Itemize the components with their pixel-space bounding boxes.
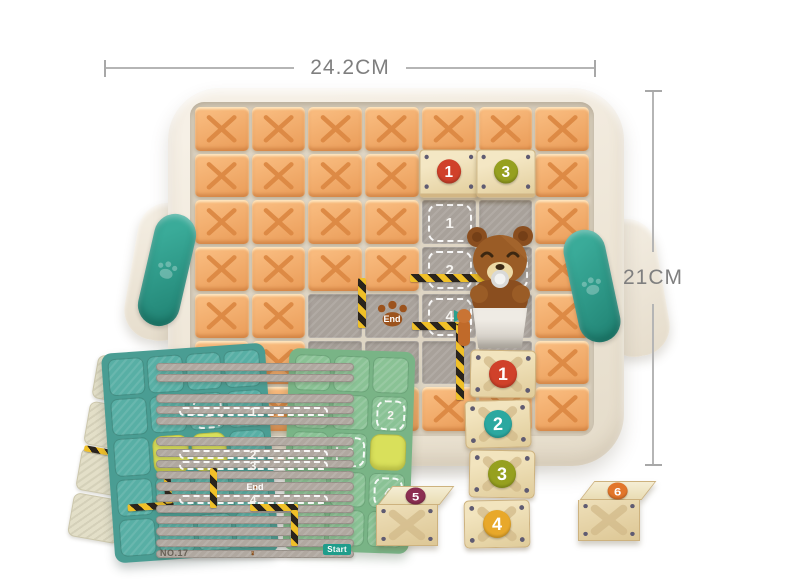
puzzle-card-front: NO.17 123End4Start	[150, 338, 360, 564]
crate-block	[479, 107, 533, 151]
card-cell	[156, 471, 354, 479]
crate-block	[195, 154, 249, 198]
x-groove-icon	[198, 203, 245, 241]
x-groove-icon	[539, 110, 586, 148]
number-badge: 3	[493, 159, 517, 183]
x-groove-icon	[482, 110, 529, 148]
x-groove-icon	[255, 250, 302, 288]
empty-cell	[156, 353, 354, 359]
yellow-cell	[369, 434, 406, 471]
cube-top: 5	[378, 486, 455, 505]
cube-front	[578, 500, 640, 541]
crate-block	[195, 200, 249, 244]
empty-cell	[156, 344, 354, 350]
width-label: 24.2CM	[310, 56, 390, 80]
target-cell: 2	[371, 395, 408, 432]
x-groove-icon	[255, 203, 302, 241]
x-groove-icon	[368, 250, 415, 288]
crate-block	[535, 341, 589, 385]
x-groove-icon	[539, 344, 586, 382]
card-cell	[113, 437, 151, 477]
number-block-6: 6	[578, 481, 640, 541]
floor-cell	[308, 294, 362, 338]
crate-block	[195, 247, 249, 291]
cube-top: 6	[580, 481, 657, 500]
target-outline: 2	[179, 450, 328, 459]
empty-cell	[156, 428, 354, 434]
height-label: 21CM	[623, 266, 683, 290]
width-dimension: 24.2CM	[104, 56, 596, 80]
card-cell	[156, 374, 354, 382]
crate-block	[308, 247, 362, 291]
tower-block: 1	[470, 349, 537, 398]
crate-block	[308, 200, 362, 244]
target-number: 2	[387, 408, 394, 422]
crate-block	[365, 247, 419, 291]
crate-block	[535, 387, 589, 431]
number-block-cell: 3	[476, 149, 535, 197]
x-groove-icon	[368, 157, 415, 195]
x-groove-icon	[368, 110, 415, 148]
number-badge: 1	[437, 159, 461, 183]
crate-block	[308, 154, 362, 198]
end-cell: End	[365, 294, 419, 338]
x-groove-icon	[539, 157, 586, 195]
dimension-tick	[594, 60, 596, 77]
card-cell	[116, 477, 154, 517]
x-groove-icon	[539, 390, 586, 428]
card-cell	[110, 397, 148, 437]
dimension-line	[406, 67, 594, 69]
card-cell	[156, 394, 354, 402]
crate-block	[422, 107, 476, 151]
number-badge: 5	[406, 487, 426, 504]
paw-icon	[151, 254, 182, 285]
crate-block	[252, 154, 306, 198]
card-cell	[156, 437, 354, 445]
dimension-line	[106, 67, 294, 69]
tower-block: 3	[469, 449, 536, 498]
x-groove-icon	[312, 203, 359, 241]
bear-block-tower: 1234	[460, 222, 540, 548]
empty-cell	[156, 385, 354, 391]
crate-block	[252, 294, 306, 338]
target-outline: 4	[179, 495, 328, 504]
number-block-cell: 1	[419, 149, 478, 197]
crate-block	[365, 200, 419, 244]
x-groove-icon	[425, 110, 472, 148]
tower-block: 4	[464, 499, 531, 548]
x-groove-icon	[198, 297, 245, 335]
crate-block	[252, 247, 306, 291]
target-cell: 3	[156, 460, 354, 468]
end-label: End	[247, 482, 264, 492]
x-groove-icon	[312, 250, 359, 288]
tower-block: 2	[464, 399, 531, 449]
start-label: Start	[323, 544, 351, 555]
hazard-stripe	[291, 510, 298, 546]
x-groove-icon	[255, 157, 302, 195]
x-groove-icon	[198, 110, 245, 148]
crate-block	[252, 200, 306, 244]
x-groove-icon	[368, 203, 415, 241]
bear-icon	[460, 222, 540, 316]
target-cell: 4	[156, 494, 354, 502]
dimension-line	[652, 304, 654, 464]
dimension-line	[652, 92, 654, 252]
card-cell	[372, 357, 409, 394]
cup	[469, 308, 531, 348]
x-groove-icon	[312, 110, 359, 148]
card-cell	[156, 363, 354, 371]
cube-front	[376, 505, 438, 546]
x-groove-icon	[198, 250, 245, 288]
card-cell	[156, 417, 354, 425]
target-outline: 1	[179, 407, 328, 416]
crate-block	[195, 294, 249, 338]
target-number: 1	[445, 215, 453, 232]
nails-icon	[377, 505, 437, 545]
crate-block	[365, 107, 419, 151]
end-cell: End	[156, 482, 354, 490]
card-number-label: NO.17	[160, 548, 189, 558]
target-cell: 2	[156, 449, 354, 457]
crate-block	[308, 107, 362, 151]
start-bear-icon	[188, 551, 317, 556]
hazard-stripe	[358, 278, 366, 328]
x-groove-icon	[255, 297, 302, 335]
crate-block	[535, 107, 589, 151]
card-cell	[107, 357, 145, 397]
number-block-5: 5	[376, 486, 438, 546]
crate-block	[365, 154, 419, 198]
card-cell	[156, 516, 354, 524]
hazard-stripe	[210, 468, 217, 508]
target-outline: 2	[375, 400, 405, 431]
crate-block	[252, 107, 306, 151]
height-dimension: 21CM	[616, 90, 690, 466]
product-photo: 24.2CM 21CM 1312End4	[0, 0, 808, 582]
dimension-tick	[645, 464, 662, 466]
x-groove-icon	[312, 157, 359, 195]
number-badge: 6	[608, 482, 628, 499]
target-cell: 1	[156, 406, 354, 414]
target-outline: 3	[179, 461, 328, 470]
paw-icon	[577, 271, 608, 302]
crate-block	[535, 154, 589, 198]
card-cell	[156, 527, 354, 535]
x-groove-icon	[198, 157, 245, 195]
nails-icon	[579, 500, 639, 540]
end-label: End	[383, 314, 400, 324]
x-groove-icon	[255, 110, 302, 148]
crate-block	[195, 107, 249, 151]
